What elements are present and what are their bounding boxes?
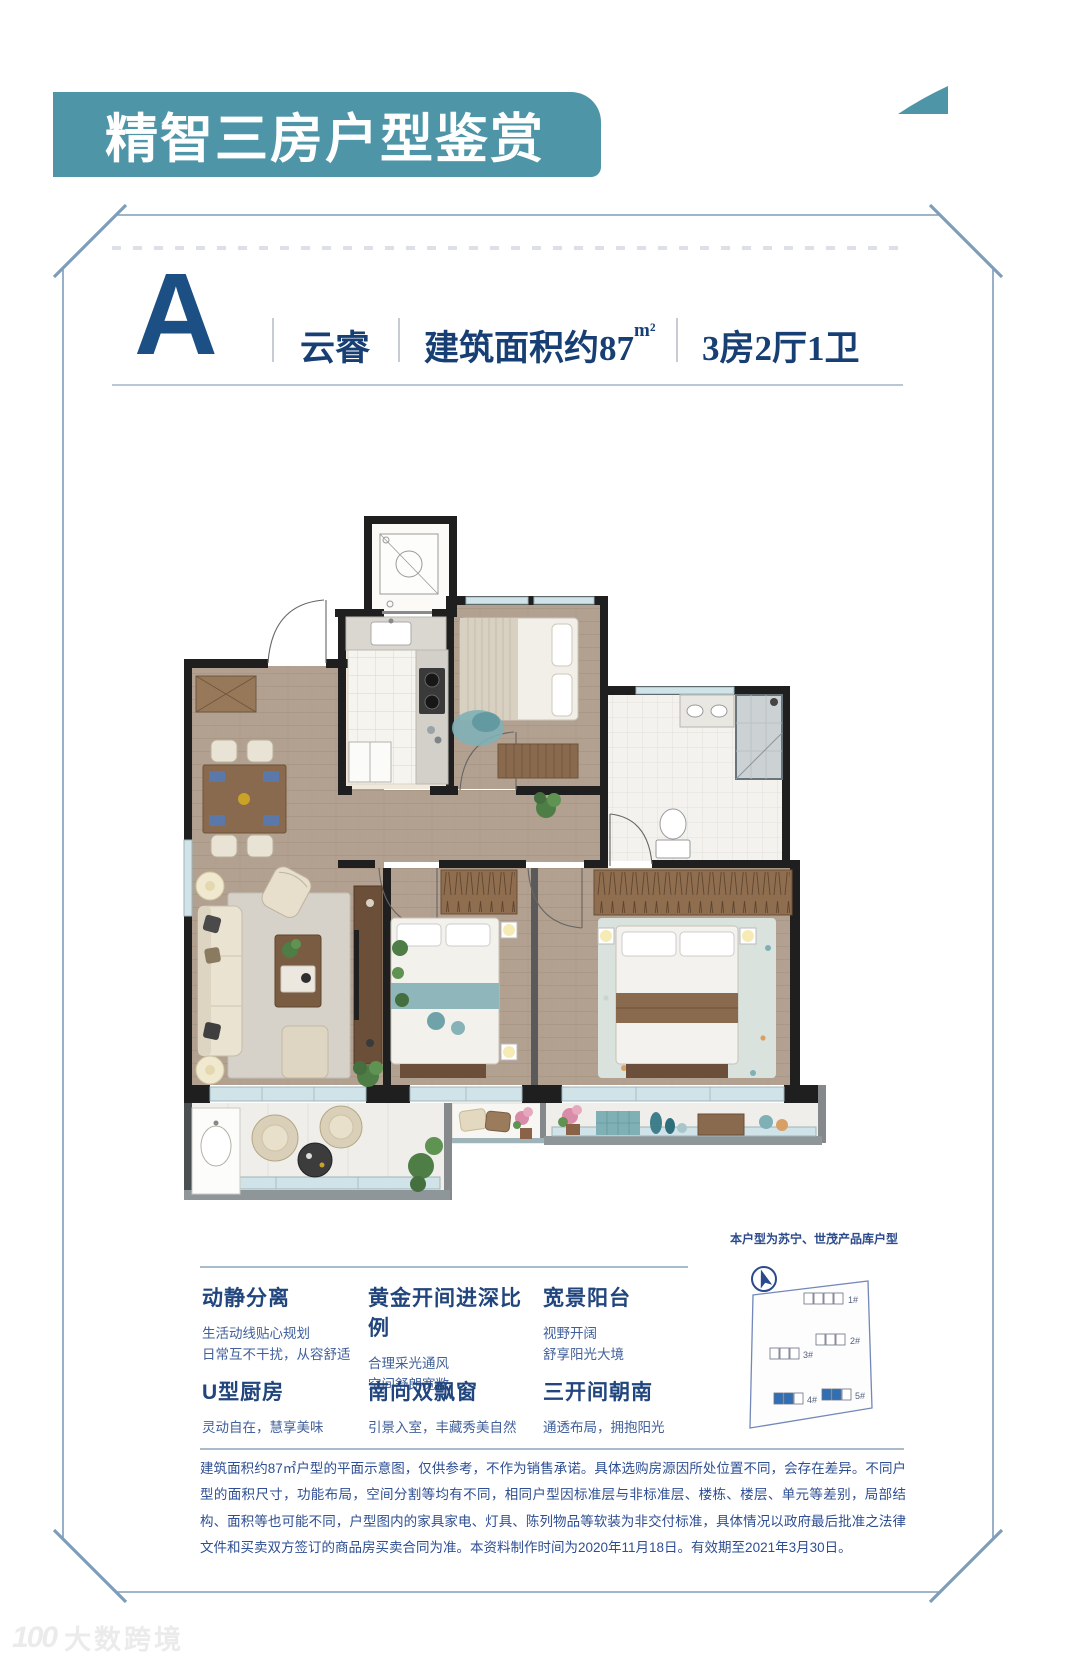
site-plan: 1# 2# 3# 4# 5# [690,1255,890,1445]
product-note: 本户型为苏宁、世茂产品库户型 [640,1230,898,1247]
features-divider-top [200,1266,688,1268]
area-unit: m² [634,320,656,341]
feature-title: 黄金开间进深比例 [368,1282,543,1342]
svg-text:4#: 4# [807,1395,817,1405]
unit-letter: A [134,256,218,372]
floor-plan [178,478,862,1208]
unit-name: 云睿 [300,320,370,371]
unit-rooms: 3房2厅1卫 [702,320,860,371]
watermark-brand: 大数跨境 [64,1618,184,1657]
watermark: 100 大数跨境 [12,1618,184,1657]
feature-separation: 动静分离 生活动线贴心规划日常互不干扰，从容舒适 [202,1282,377,1366]
divider-bar [398,318,400,362]
kitchen [346,617,448,784]
feature-bay-windows: 南向双飘窗 引景入室，丰藏秀美自然 [368,1376,543,1439]
area-label: 建筑面积约87 [424,329,634,368]
feature-title: 动静分离 [202,1282,377,1312]
dotted-strip [112,246,902,250]
divider-bar [272,318,274,362]
feature-title: U型厨房 [202,1376,377,1406]
feature-desc: 通透布局，拥抱阳光 [543,1418,718,1439]
feature-desc: 灵动自在，慧享美味 [202,1418,377,1439]
corner-flag-icon [896,84,950,116]
feature-title: 南向双飘窗 [368,1376,543,1406]
features-divider-bottom [200,1448,904,1450]
feature-wide-balcony: 宽景阳台 视野开阔舒享阳光大境 [543,1282,718,1366]
feature-south-facing: 三开间朝南 通透布局，拥抱阳光 [543,1376,718,1439]
page-title: 精智三房户型鉴赏 [53,97,545,173]
header-banner: 精智三房户型鉴赏 [53,92,601,177]
title-underline [112,384,903,386]
brochure-page: 精智三房户型鉴赏 A 云睿 建筑面积约87m² 3房2厅1卫 [0,0,1080,1674]
feature-u-kitchen: U型厨房 灵动自在，慧享美味 [202,1376,377,1439]
svg-text:1#: 1# [848,1295,858,1305]
feature-desc: 引景入室，丰藏秀美自然 [368,1418,543,1439]
feature-title: 宽景阳台 [543,1282,718,1312]
feature-desc: 生活动线贴心规划日常互不干扰，从容舒适 [202,1324,377,1366]
feature-title: 三开间朝南 [543,1376,718,1406]
watermark-logo: 100 [12,1621,56,1655]
svg-text:5#: 5# [855,1391,865,1401]
divider-bar [676,318,678,362]
unit-area: 建筑面积约87m² [424,320,656,371]
svg-text:3#: 3# [803,1350,813,1360]
disclaimer-text: 建筑面积约87㎡户型的平面示意图，仅供参考，不作为销售承诺。具体选购房源因所处位… [200,1456,906,1561]
svg-text:2#: 2# [850,1336,860,1346]
feature-desc: 视野开阔舒享阳光大境 [543,1324,718,1366]
north-arrow-icon [752,1267,776,1291]
